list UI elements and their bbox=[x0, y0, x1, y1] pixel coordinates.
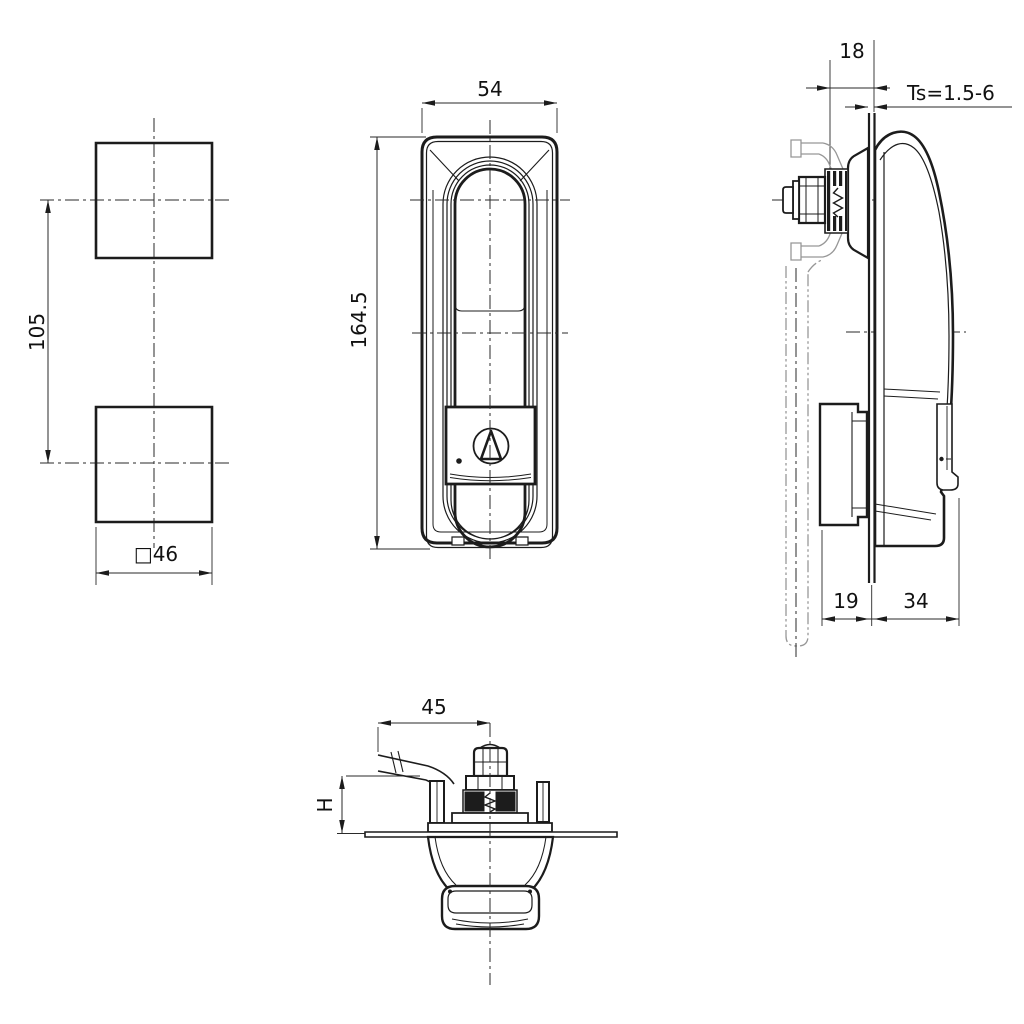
grip-clearance-label: 18 bbox=[839, 39, 864, 63]
panel-thickness-label: Ts=1.5-6 bbox=[906, 81, 995, 105]
cutout-size-label: □46 bbox=[134, 542, 178, 566]
front-latch-bar bbox=[937, 404, 958, 490]
depth-in-front-label: 34 bbox=[903, 589, 928, 613]
cam-reach-label: 45 bbox=[421, 695, 446, 719]
dimension-front-height: 164.5 bbox=[347, 137, 430, 549]
cutout-template-view: 105 □46 bbox=[25, 118, 232, 585]
cam-lever-break-marks bbox=[391, 751, 403, 773]
seal-pin-dot bbox=[456, 458, 462, 464]
dimension-cam-reach: 45 bbox=[378, 695, 490, 752]
extension-lines bbox=[337, 776, 420, 834]
front-height-label: 164.5 bbox=[347, 291, 371, 348]
cup-pin-right bbox=[528, 890, 532, 894]
dimension-cam-height: H bbox=[313, 776, 420, 834]
front-view: 54 164.5 bbox=[347, 77, 570, 560]
cutout-centerlines bbox=[40, 118, 232, 548]
side-view: 18 Ts=1.5-6 bbox=[772, 39, 1012, 658]
front-width-label: 54 bbox=[477, 77, 502, 101]
mounting-collar bbox=[848, 148, 868, 258]
phantom-cam-arm bbox=[786, 260, 822, 646]
fixing-nut bbox=[799, 177, 825, 223]
mounting-panel-section bbox=[869, 113, 875, 583]
cutout-spacing-label: 105 bbox=[25, 313, 49, 351]
technical-drawing-page: 105 □46 54 164.5 bbox=[0, 0, 1024, 1024]
bottom-view: 45 H bbox=[313, 695, 617, 985]
back-lock-case bbox=[820, 404, 867, 525]
cam-height-label: H bbox=[313, 797, 337, 812]
cup-pin-left bbox=[448, 890, 452, 894]
latch-pivot-dot bbox=[939, 457, 943, 461]
depth-behind-panel-label: 19 bbox=[833, 589, 858, 613]
front-centerlines bbox=[410, 120, 570, 560]
dimension-cutout-spacing: 105 bbox=[25, 200, 51, 463]
dimension-arrows bbox=[855, 104, 887, 110]
dimension-panel-thickness: Ts=1.5-6 bbox=[845, 81, 1012, 110]
spindle-end-cap bbox=[783, 187, 793, 213]
lock-handle-technical-drawing: 105 □46 54 164.5 bbox=[0, 0, 1024, 1024]
dimension-cutout-size: □46 bbox=[96, 527, 212, 585]
